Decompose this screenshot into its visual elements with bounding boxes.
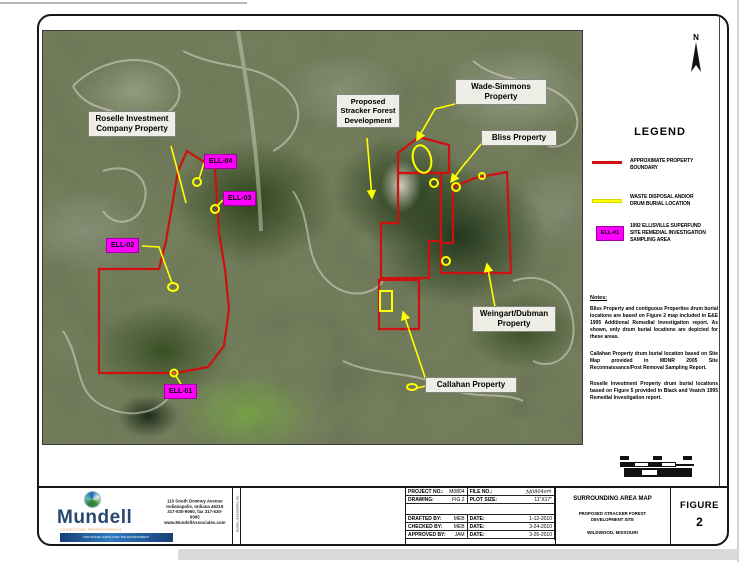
checked-by-cell: CHECKED BY: MEB [406, 523, 468, 530]
scale-bar [620, 456, 694, 480]
label-text: Bliss Property [484, 133, 554, 143]
label-text: Roselle Investment [91, 114, 173, 124]
legend-item-label: APPROXIMATE PROPERTY BOUNDARY [630, 158, 722, 172]
company-tagline: CONSULTING PROFESSIONALS [60, 528, 122, 532]
label-stracker-development: Proposed Stracker Forest Development [336, 94, 400, 128]
table-row: DRAFTED BY: MEB DATE: 1-12-2010 [406, 515, 554, 523]
table-row: CHECKED BY: MEB DATE: 3-24-2010 [406, 523, 554, 531]
table-row: PROJECT NO.: M0804 FILE NO.: M0804am [406, 488, 554, 496]
label-text: Company Property [91, 124, 173, 134]
legend-item-label: DRUM BURIAL LOCATION [630, 201, 722, 208]
scale-bar-segment [641, 469, 658, 476]
sheet-title: SURROUNDING AREA MAP [555, 496, 670, 502]
page-edge-line [737, 0, 739, 562]
drafted-by-cell: DRAFTED BY: MEB [406, 515, 468, 522]
approved-date-cell: DATE: 3-26-2010 [468, 531, 554, 538]
label-text: Weingart/Dubman [475, 309, 553, 319]
cell-value: M0804am [526, 488, 552, 495]
cell-label: DATE: [470, 524, 485, 530]
cell-label: FILE NO.: [470, 489, 493, 495]
project-no-cell: PROJECT NO.: M0804 [406, 488, 468, 495]
cell-label: APPROVED BY: [408, 532, 446, 538]
sheet-location: WILDWOOD, MISSOURI [561, 530, 665, 535]
table-spacer-row [406, 504, 554, 515]
legend-right-rule [719, 16, 720, 486]
company-banner: FOR WATER, EARTH AND THE ENVIRONMENT [60, 533, 173, 542]
sheet-subtitle: DEVELOPMENT SITE [564, 517, 662, 522]
label-weingart-dubman-property: Weingart/Dubman Property [472, 306, 556, 332]
file-no-cell: FILE NO.: M0804am [468, 488, 554, 495]
scale-bar-baseline [676, 464, 694, 466]
label-text: Development [339, 116, 397, 125]
ell01-center-dot [173, 372, 176, 375]
legend-item-label: 1992 ELLISVILLE SUPERFUND [630, 223, 722, 230]
cell-value: 3-24-2010 [529, 524, 552, 530]
cell-label: CHECKED BY: [408, 524, 442, 530]
cell-label: DATE: [470, 532, 485, 538]
title-block-divider [240, 488, 241, 544]
approved-by-cell: APPROVED BY: JAM [406, 531, 468, 538]
legend-magenta-box-swatch: ELL-#1 [596, 226, 624, 241]
drafted-date-cell: DATE: 1-12-2010 [468, 515, 554, 522]
label-bliss-property: Bliss Property [481, 130, 557, 146]
notes-heading: Notes: [590, 295, 607, 301]
cell-value: MEB [454, 524, 465, 530]
cell-label: PROJECT NO.: [408, 489, 444, 495]
table-row: APPROVED BY: JAM DATE: 3-26-2010 [406, 531, 554, 539]
address-line: www.MundellAssociates.com [164, 521, 226, 526]
legend-red-line-swatch [592, 161, 622, 164]
note-paragraph-roselle: Roselle Investment Property drum burial … [590, 381, 718, 402]
label-text: Stracker Forest [339, 106, 397, 115]
north-arrow-icon [689, 42, 703, 76]
label-text: Property [458, 92, 544, 102]
cell-label: PLOT SIZE: [470, 497, 498, 503]
label-ell-03: ELL-03 [223, 191, 256, 206]
cell-label: DRAWING: [408, 497, 434, 503]
north-arrow: N [684, 33, 708, 81]
mundell-globe-icon [84, 491, 101, 508]
label-ell-01: ELL-01 [164, 384, 197, 399]
cell-label: DATE: [470, 516, 485, 522]
label-text: Property [475, 319, 553, 329]
cell-label: DRAFTED BY: [408, 516, 442, 522]
label-wade-simmons-property: Wade-Simmons Property [455, 79, 547, 105]
label-text: Proposed [339, 97, 397, 106]
title-block-top-rule [37, 486, 729, 488]
rotated-side-note: MUNDELL & ASSOCIATES, INC. [232, 488, 240, 544]
cell-value: 3-26-2010 [529, 532, 552, 538]
sheet-subtitle: PROPOSED STRACKER FOREST [564, 511, 662, 516]
north-label: N [684, 33, 708, 42]
company-address: 110 South Downey Avenue Indianapolis, In… [164, 500, 226, 526]
legend-item-label: WASTE DISPOSAL AND/OR [630, 194, 722, 201]
legend-item-sampling-area: 1992 ELLISVILLE SUPERFUND SITE REMEDIAL … [630, 223, 722, 243]
cell-value: MEB [454, 516, 465, 522]
legend-item-boundary: APPROXIMATE PROPERTY BOUNDARY [630, 158, 722, 172]
label-ell-02: ELL-02 [106, 238, 139, 253]
scale-tick [620, 456, 629, 460]
cell-value: 11"X17" [534, 497, 552, 503]
scale-bar-lower [624, 468, 692, 477]
legend-yellow-line-swatch [592, 199, 622, 203]
figure-label: FIGURE [670, 500, 729, 511]
table-row: DRAWING: FIG 2 PLOT SIZE: 11"X17" [406, 496, 554, 504]
label-ell-04: ELL-04 [204, 154, 237, 169]
cell-value: JAM [455, 532, 465, 538]
scale-tick [683, 456, 692, 460]
legend-title: LEGEND [600, 126, 720, 138]
figure-number: 2 [670, 515, 729, 529]
cell-value: M0804 [449, 489, 464, 495]
page-edge-artifact [0, 2, 247, 4]
plot-size-cell: PLOT SIZE: 11"X17" [468, 496, 554, 503]
note-paragraph-bliss: Bliss Property and contiguous Properties… [590, 306, 718, 341]
legend-item-waste-disposal: WASTE DISPOSAL AND/OR DRUM BURIAL LOCATI… [630, 194, 722, 208]
aerial-map: Roselle Investment Company Property Prop… [42, 30, 583, 445]
label-roselle-property: Roselle Investment Company Property [88, 111, 176, 137]
scale-bar-upper [620, 462, 676, 467]
page-shadow [178, 549, 738, 560]
company-name: Mundell [57, 507, 132, 529]
address-line: 317-630-9060, fax 317-630-9065 [164, 510, 226, 520]
checked-date-cell: DATE: 3-24-2010 [468, 523, 554, 530]
drawing-cell: DRAWING: FIG 2 [406, 496, 468, 503]
side-note-text: MUNDELL & ASSOCIATES, INC. [237, 502, 240, 532]
sheet-title-block: SURROUNDING AREA MAP PROPOSED STRACKER F… [555, 492, 670, 536]
scale-tick [653, 456, 662, 460]
cell-value: FIG 2 [452, 497, 465, 503]
legend-item-label: SITE REMEDIAL INVESTIGATION [630, 230, 722, 237]
legend-item-label: SAMPLING AREA [630, 237, 722, 244]
label-text: Callahan Property [428, 380, 514, 390]
company-banner-text: FOR WATER, EARTH AND THE ENVIRONMENT [83, 535, 149, 540]
note-paragraph-callahan: Callahan Property drum burial location b… [590, 351, 718, 372]
label-text: Wade-Simmons [458, 82, 544, 92]
figure-number-box: FIGURE 2 [670, 492, 729, 529]
label-callahan-property: Callahan Property [425, 377, 517, 393]
property-boundaries [99, 137, 511, 373]
project-info-table: PROJECT NO.: M0804 FILE NO.: M0804am DRA… [405, 488, 555, 540]
cell-value: 1-12-2010 [529, 516, 552, 522]
